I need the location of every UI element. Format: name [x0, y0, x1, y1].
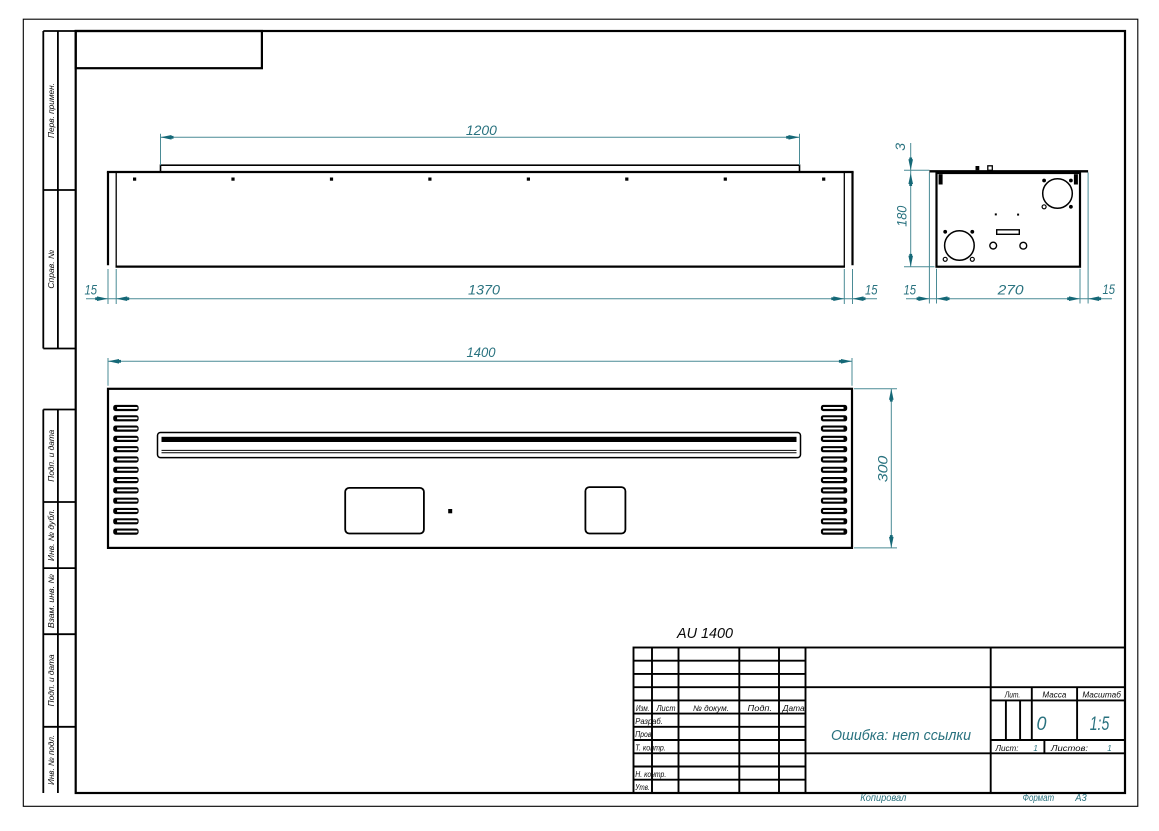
svg-text:15: 15 — [1103, 281, 1116, 297]
svg-text:15: 15 — [865, 281, 878, 297]
svg-text:Т. контр.: Т. контр. — [635, 743, 666, 752]
svg-text:Лист: Лист — [656, 704, 676, 713]
svg-text:Разраб.: Разраб. — [635, 717, 663, 726]
svg-text:Масса: Масса — [1042, 690, 1067, 699]
svg-text:270: 270 — [996, 281, 1023, 297]
svg-text:300: 300 — [875, 456, 891, 483]
svg-text:1: 1 — [1107, 744, 1111, 753]
svg-text:Листов:: Листов: — [1050, 744, 1088, 753]
svg-text:Масштаб: Масштаб — [1082, 690, 1121, 699]
svg-text:Инв. № дубл.: Инв. № дубл. — [47, 509, 56, 561]
svg-text:1200: 1200 — [466, 122, 497, 138]
svg-text:Пров.: Пров. — [635, 730, 653, 739]
svg-text:Взам. инв. №: Взам. инв. № — [47, 574, 56, 628]
svg-text:0: 0 — [1037, 714, 1047, 735]
svg-text:AU 1400: AU 1400 — [676, 625, 734, 642]
svg-text:Перв. примен.: Перв. примен. — [47, 83, 56, 138]
svg-text:1400: 1400 — [467, 344, 496, 360]
svg-text:А3: А3 — [1074, 793, 1087, 804]
svg-text:180: 180 — [893, 206, 909, 227]
svg-text:Инв. № подл.: Инв. № подл. — [47, 735, 56, 785]
svg-text:1370: 1370 — [468, 281, 500, 297]
svg-text:Справ. №: Справ. № — [47, 249, 56, 288]
svg-text:Формат: Формат — [1023, 793, 1055, 804]
svg-text:Подп.: Подп. — [748, 704, 773, 713]
svg-text:15: 15 — [904, 281, 917, 297]
svg-text:Дата: Дата — [782, 704, 806, 713]
svg-text:Лист:: Лист: — [994, 744, 1018, 753]
svg-text:Лит.: Лит. — [1004, 690, 1020, 699]
svg-text:Ошибка: нет ссылки: Ошибка: нет ссылки — [831, 728, 971, 744]
svg-text:Н. контр.: Н. контр. — [635, 770, 666, 779]
svg-text:Копировал: Копировал — [860, 793, 906, 804]
svg-text:1:5: 1:5 — [1090, 714, 1110, 735]
svg-text:Изм.: Изм. — [636, 704, 650, 713]
svg-text:№ докум.: № докум. — [693, 704, 729, 713]
svg-text:Подп. и дата: Подп. и дата — [47, 429, 56, 482]
svg-text:3: 3 — [892, 143, 908, 151]
svg-text:Подп. и дата: Подп. и дата — [47, 654, 56, 707]
svg-text:15: 15 — [84, 282, 97, 298]
svg-text:1: 1 — [1033, 744, 1037, 753]
svg-text:Утв.: Утв. — [635, 783, 650, 792]
